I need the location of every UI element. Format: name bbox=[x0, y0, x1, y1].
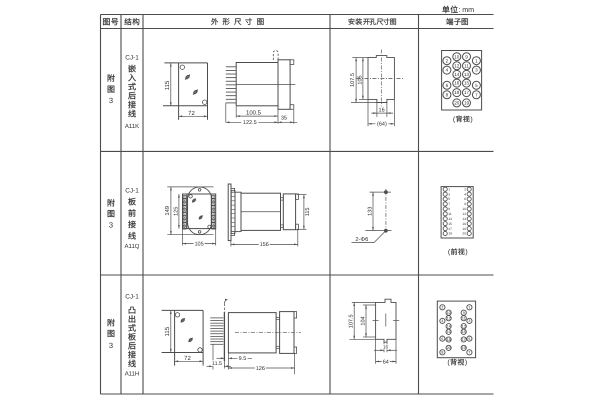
svg-text:12: 12 bbox=[454, 63, 460, 68]
svg-text:11: 11 bbox=[462, 316, 466, 320]
svg-text:A11Q: A11Q bbox=[125, 243, 140, 250]
svg-text:10: 10 bbox=[447, 311, 451, 315]
svg-text:6: 6 bbox=[446, 83, 449, 88]
svg-text:8: 8 bbox=[441, 351, 443, 355]
svg-text:6: 6 bbox=[464, 197, 466, 201]
svg-text:12: 12 bbox=[447, 316, 451, 320]
svg-text:16: 16 bbox=[454, 81, 460, 86]
svg-text:11: 11 bbox=[464, 63, 469, 68]
svg-text:16: 16 bbox=[447, 330, 451, 334]
svg-text:10: 10 bbox=[454, 54, 460, 59]
svg-text:12: 12 bbox=[462, 212, 466, 216]
svg-text:20: 20 bbox=[447, 346, 451, 350]
svg-text:126: 126 bbox=[256, 366, 265, 372]
svg-text:): ) bbox=[465, 248, 467, 256]
svg-text:18: 18 bbox=[454, 90, 460, 95]
svg-text:11: 11 bbox=[448, 212, 452, 216]
svg-text:15: 15 bbox=[462, 330, 466, 334]
svg-text:3: 3 bbox=[468, 319, 470, 323]
svg-text:9: 9 bbox=[448, 207, 450, 211]
svg-text:6: 6 bbox=[441, 337, 443, 341]
svg-text:8: 8 bbox=[446, 92, 449, 97]
svg-text:125: 125 bbox=[173, 207, 179, 216]
svg-text:10: 10 bbox=[462, 207, 466, 211]
svg-text:35: 35 bbox=[281, 116, 287, 122]
svg-text:13: 13 bbox=[448, 217, 452, 221]
svg-text:7: 7 bbox=[448, 202, 450, 206]
svg-text:): ) bbox=[465, 358, 467, 366]
svg-text:64: 64 bbox=[383, 359, 389, 365]
svg-text:9: 9 bbox=[465, 54, 468, 59]
svg-text:CJ-1: CJ-1 bbox=[125, 55, 139, 62]
svg-text:17: 17 bbox=[464, 90, 470, 95]
svg-text:2: 2 bbox=[446, 58, 449, 63]
svg-text:2-Φ6: 2-Φ6 bbox=[355, 236, 368, 243]
svg-text:13: 13 bbox=[464, 72, 470, 77]
svg-text:1: 1 bbox=[448, 187, 450, 191]
svg-text:CJ-1: CJ-1 bbox=[125, 294, 139, 301]
svg-text:14: 14 bbox=[462, 217, 466, 221]
svg-text:20: 20 bbox=[454, 101, 460, 106]
svg-text:19: 19 bbox=[462, 346, 466, 350]
svg-text:15: 15 bbox=[464, 81, 470, 86]
svg-text:2: 2 bbox=[441, 306, 443, 310]
svg-text:7: 7 bbox=[468, 351, 470, 355]
svg-text:14: 14 bbox=[447, 324, 451, 328]
svg-text:115: 115 bbox=[305, 208, 311, 217]
svg-text:5: 5 bbox=[448, 197, 450, 201]
svg-text:9: 9 bbox=[463, 311, 465, 315]
svg-text:mm: mm bbox=[462, 5, 474, 14]
svg-text:19: 19 bbox=[448, 232, 452, 236]
svg-text:105: 105 bbox=[357, 75, 363, 84]
svg-text:): ) bbox=[470, 115, 472, 123]
svg-text:8: 8 bbox=[464, 202, 466, 206]
svg-text:104: 104 bbox=[360, 316, 366, 325]
svg-text:3: 3 bbox=[448, 192, 450, 196]
svg-text:72: 72 bbox=[184, 355, 191, 362]
svg-text:CJ-1: CJ-1 bbox=[125, 188, 139, 195]
svg-text:A11H: A11H bbox=[125, 370, 140, 377]
svg-text:15: 15 bbox=[448, 222, 452, 226]
svg-text:17: 17 bbox=[448, 227, 452, 231]
svg-text:18: 18 bbox=[462, 227, 466, 231]
svg-text:156: 156 bbox=[260, 242, 269, 248]
svg-text:2: 2 bbox=[464, 187, 466, 191]
svg-text:115: 115 bbox=[164, 326, 171, 336]
svg-text:9.5: 9.5 bbox=[239, 356, 247, 362]
svg-text:16: 16 bbox=[462, 222, 466, 226]
svg-text:13: 13 bbox=[462, 324, 466, 328]
svg-text:14: 14 bbox=[454, 72, 460, 77]
svg-text::: : bbox=[458, 7, 460, 14]
svg-text:105: 105 bbox=[195, 241, 204, 247]
svg-text:149: 149 bbox=[164, 206, 171, 216]
svg-text:16: 16 bbox=[379, 107, 385, 113]
svg-text:107.5: 107.5 bbox=[350, 73, 356, 87]
svg-text:1: 1 bbox=[475, 58, 478, 63]
svg-text:5: 5 bbox=[475, 83, 478, 88]
svg-text:72: 72 bbox=[188, 110, 195, 117]
svg-text:4: 4 bbox=[446, 68, 449, 73]
svg-text:3: 3 bbox=[475, 68, 478, 73]
svg-text:(64): (64) bbox=[377, 122, 387, 128]
svg-text:3: 3 bbox=[109, 341, 113, 350]
svg-text:20: 20 bbox=[462, 232, 466, 236]
svg-text:133: 133 bbox=[367, 207, 373, 216]
svg-text:107.5: 107.5 bbox=[349, 314, 355, 328]
svg-text:1: 1 bbox=[468, 306, 470, 310]
svg-text:100.5: 100.5 bbox=[246, 110, 262, 117]
svg-text:3: 3 bbox=[109, 220, 113, 229]
svg-text:122.5: 122.5 bbox=[243, 120, 257, 126]
svg-text:4: 4 bbox=[441, 319, 443, 323]
svg-text:11.5: 11.5 bbox=[212, 361, 222, 367]
svg-text:4: 4 bbox=[464, 192, 466, 196]
svg-text:16: 16 bbox=[383, 344, 389, 349]
svg-text:18: 18 bbox=[447, 338, 451, 342]
svg-text:A11K: A11K bbox=[125, 123, 139, 130]
svg-text:19: 19 bbox=[464, 101, 470, 106]
svg-text:7: 7 bbox=[475, 92, 478, 97]
svg-text:17: 17 bbox=[462, 338, 466, 342]
svg-text:3: 3 bbox=[109, 96, 113, 105]
svg-text:115: 115 bbox=[164, 80, 171, 90]
svg-text:5: 5 bbox=[468, 337, 470, 341]
